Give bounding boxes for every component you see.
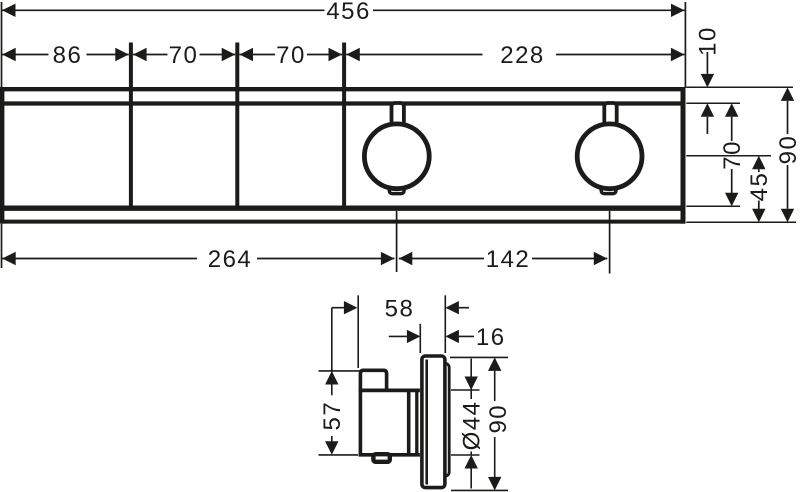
svg-text:264: 264 xyxy=(208,246,253,273)
svg-text:16: 16 xyxy=(476,324,506,351)
svg-text:142: 142 xyxy=(486,246,531,273)
svg-text:70: 70 xyxy=(169,42,199,69)
svg-text:58: 58 xyxy=(385,295,415,322)
svg-text:86: 86 xyxy=(53,42,83,69)
svg-text:456: 456 xyxy=(326,0,371,25)
svg-text:10: 10 xyxy=(695,26,722,56)
svg-text:90: 90 xyxy=(485,404,512,434)
svg-text:45: 45 xyxy=(746,172,773,202)
svg-text:90: 90 xyxy=(775,135,800,165)
svg-text:70: 70 xyxy=(719,140,746,170)
svg-text:228: 228 xyxy=(500,42,545,69)
svg-text:70: 70 xyxy=(276,42,306,69)
svg-text:Ø44: Ø44 xyxy=(458,400,485,450)
svg-text:57: 57 xyxy=(319,401,346,431)
